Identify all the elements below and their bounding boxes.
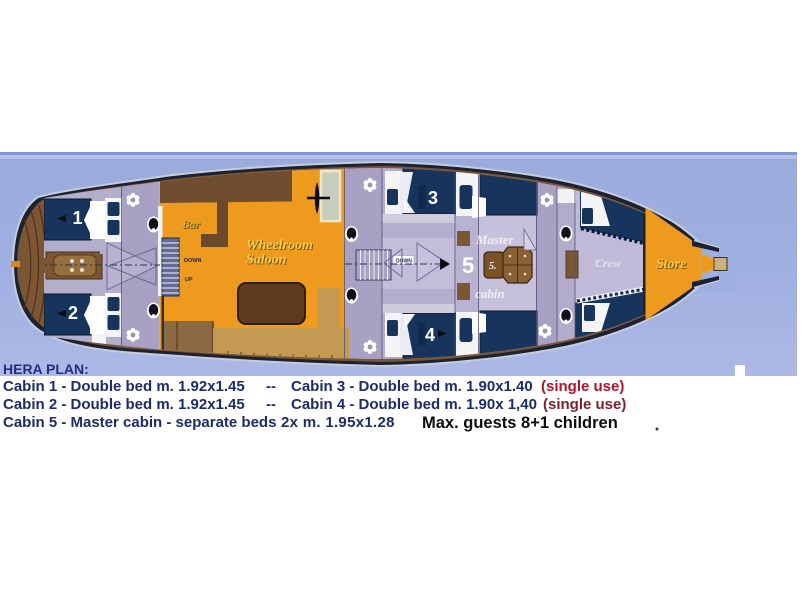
- svg-text:5.: 5.: [489, 261, 497, 272]
- svg-text:UP: UP: [185, 277, 193, 283]
- svg-text:Max. guests 8+1 children: Max. guests 8+1 children: [422, 414, 618, 432]
- svg-text:Cabin 4 - Double bed m. 1.90x: Cabin 4 - Double bed m. 1.90x 1,40: [291, 396, 537, 413]
- svg-text:--: --: [266, 378, 276, 395]
- svg-text:2: 2: [68, 303, 78, 323]
- svg-text:3: 3: [428, 188, 438, 208]
- svg-text:Cabin 2 - Double bed m. 1.92x1: Cabin 2 - Double bed m. 1.92x1.45: [3, 396, 245, 413]
- svg-text:Saloon: Saloon: [246, 252, 287, 267]
- svg-text:Store: Store: [656, 257, 686, 272]
- svg-text:--: --: [266, 396, 276, 413]
- svg-text:2x m. 1.95x1.28: 2x m. 1.95x1.28: [281, 414, 395, 431]
- svg-text:cabin: cabin: [475, 286, 505, 301]
- svg-text:5: 5: [462, 253, 474, 278]
- svg-text:(single use): (single use): [541, 378, 624, 395]
- svg-text:Wheelroom: Wheelroom: [246, 238, 313, 253]
- svg-text:Master: Master: [475, 232, 515, 247]
- svg-text:HERA PLAN:: HERA PLAN:: [3, 361, 89, 377]
- svg-text:DOWN: DOWN: [184, 258, 201, 264]
- svg-text:(single use): (single use): [543, 396, 626, 413]
- svg-text:Bar: Bar: [181, 219, 200, 231]
- svg-text:Cabin 3 - Double bed m. 1.90x1: Cabin 3 - Double bed m. 1.90x1.40: [291, 378, 533, 395]
- svg-text:Cabin 1 - Double bed m. 1.92x1: Cabin 1 - Double bed m. 1.92x1.45: [3, 378, 245, 395]
- svg-text:4: 4: [425, 325, 435, 345]
- svg-text:Crew: Crew: [595, 256, 622, 270]
- svg-text:Cabin 5 - Master cabin - separ: Cabin 5 - Master cabin - separate beds: [3, 414, 276, 431]
- svg-text:1: 1: [73, 208, 83, 228]
